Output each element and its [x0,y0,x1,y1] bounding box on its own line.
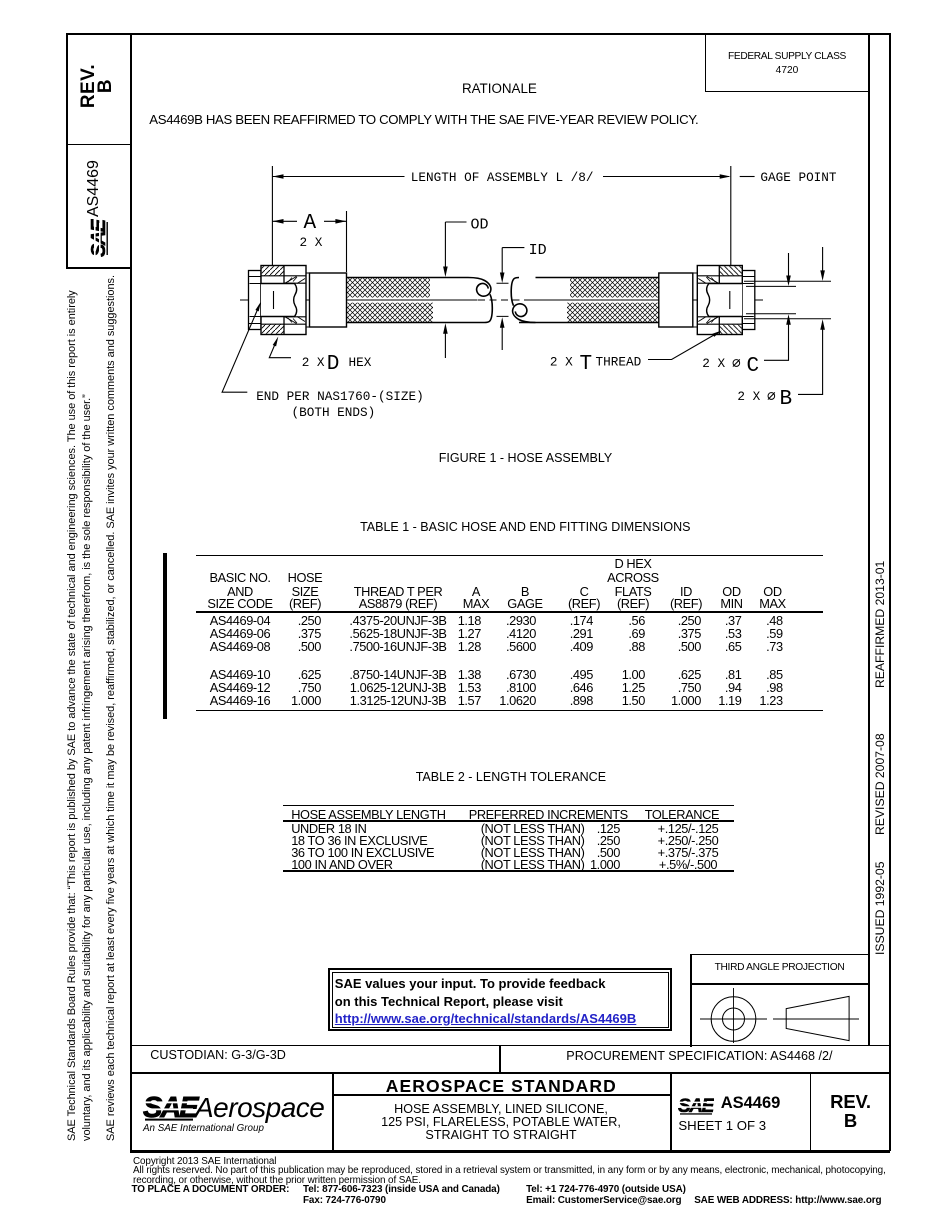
svg-text:2 X: 2 X [737,389,760,404]
svg-text:T: T [580,353,593,376]
svg-text:HEX: HEX [349,355,372,370]
svg-text:A: A [304,212,317,235]
svg-text:2 X: 2 X [300,235,323,250]
svg-text:END PER NAS1760-(SIZE): END PER NAS1760-(SIZE) [256,389,424,404]
svg-text:D: D [327,353,340,376]
svg-text:SAE: SAE [678,1096,714,1116]
svg-text:GAGE POINT: GAGE POINT [760,170,837,185]
svg-text:ID: ID [529,242,547,259]
svg-text:2 X: 2 X [550,355,573,370]
svg-text:⌀: ⌀ [767,390,776,406]
svg-text:LENGTH OF ASSEMBLY L /8/: LENGTH OF ASSEMBLY L /8/ [411,170,594,185]
svg-text:2 X: 2 X [302,355,325,370]
svg-text:2 X: 2 X [702,356,725,371]
svg-text:THREAD: THREAD [596,355,642,370]
svg-text:⌀: ⌀ [732,356,741,372]
svg-text:OD: OD [471,217,489,234]
svg-text:An SAE International Group: An SAE International Group [142,1123,264,1134]
svg-text:SAE: SAE [88,219,109,257]
svg-text:(BOTH ENDS): (BOTH ENDS) [292,405,376,420]
svg-text:B: B [780,388,793,411]
svg-text:C: C [747,355,760,378]
svg-text:Aerospace: Aerospace [193,1092,324,1123]
